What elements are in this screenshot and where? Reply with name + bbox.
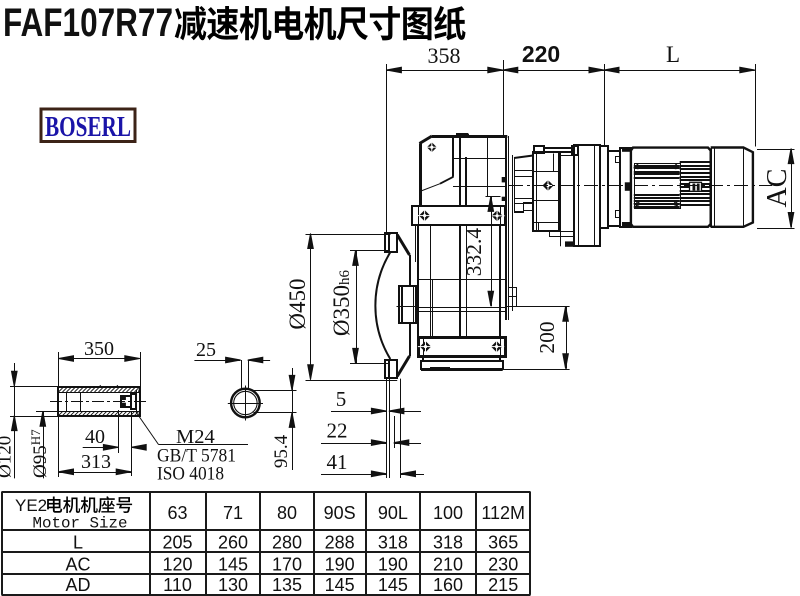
svg-text:22: 22 — [327, 419, 348, 443]
svg-text:80: 80 — [277, 503, 297, 523]
svg-text:71: 71 — [223, 503, 243, 523]
svg-text:350: 350 — [84, 338, 114, 360]
svg-text:318: 318 — [433, 533, 463, 553]
svg-text:230: 230 — [488, 555, 518, 575]
svg-text:L: L — [666, 42, 680, 67]
svg-text:200: 200 — [535, 321, 559, 353]
svg-text:AC: AC — [762, 169, 793, 208]
svg-text:145: 145 — [218, 555, 248, 575]
svg-text:25: 25 — [196, 339, 216, 361]
svg-text:210: 210 — [433, 555, 463, 575]
svg-text:170: 170 — [272, 555, 302, 575]
svg-text:145: 145 — [378, 575, 408, 595]
svg-text:318: 318 — [378, 533, 408, 553]
svg-text:313: 313 — [81, 451, 111, 473]
svg-text:120: 120 — [162, 555, 192, 575]
svg-text:135: 135 — [272, 575, 302, 595]
svg-text:L: L — [73, 533, 83, 553]
svg-text:Ø450: Ø450 — [285, 278, 310, 329]
svg-text:AD: AD — [65, 575, 90, 595]
svg-text:FAF107R77: FAF107R77 — [3, 1, 173, 45]
svg-text:215: 215 — [488, 575, 518, 595]
svg-text:112M: 112M — [481, 503, 525, 523]
svg-text:41: 41 — [327, 450, 348, 474]
svg-text:40: 40 — [85, 426, 105, 448]
svg-text:205: 205 — [162, 533, 192, 553]
svg-text:220: 220 — [522, 41, 560, 67]
svg-text:358: 358 — [428, 43, 461, 68]
svg-text:90L: 90L — [378, 503, 408, 523]
svg-text:95.4: 95.4 — [271, 434, 292, 468]
svg-text:190: 190 — [325, 555, 355, 575]
svg-text:5: 5 — [336, 387, 347, 411]
svg-text:130: 130 — [218, 575, 248, 595]
svg-text:365: 365 — [488, 533, 518, 553]
svg-text:288: 288 — [325, 533, 355, 553]
svg-text:90S: 90S — [324, 503, 356, 523]
svg-text:100: 100 — [433, 503, 463, 523]
svg-text:YE2: YE2 — [15, 496, 47, 515]
svg-text:332.4: 332.4 — [462, 228, 486, 277]
svg-text:190: 190 — [378, 555, 408, 575]
svg-text:160: 160 — [433, 575, 463, 595]
svg-text:63: 63 — [167, 503, 187, 523]
svg-text:280: 280 — [272, 533, 302, 553]
svg-text:Motor Size: Motor Size — [33, 515, 128, 533]
svg-text:145: 145 — [325, 575, 355, 595]
svg-text:AC: AC — [65, 555, 90, 575]
svg-text:Ø120: Ø120 — [0, 436, 16, 478]
svg-text:BOSERL: BOSERL — [45, 112, 131, 143]
svg-text:ISO 4018: ISO 4018 — [157, 464, 224, 485]
svg-text:260: 260 — [218, 533, 248, 553]
svg-text:110: 110 — [163, 575, 192, 595]
